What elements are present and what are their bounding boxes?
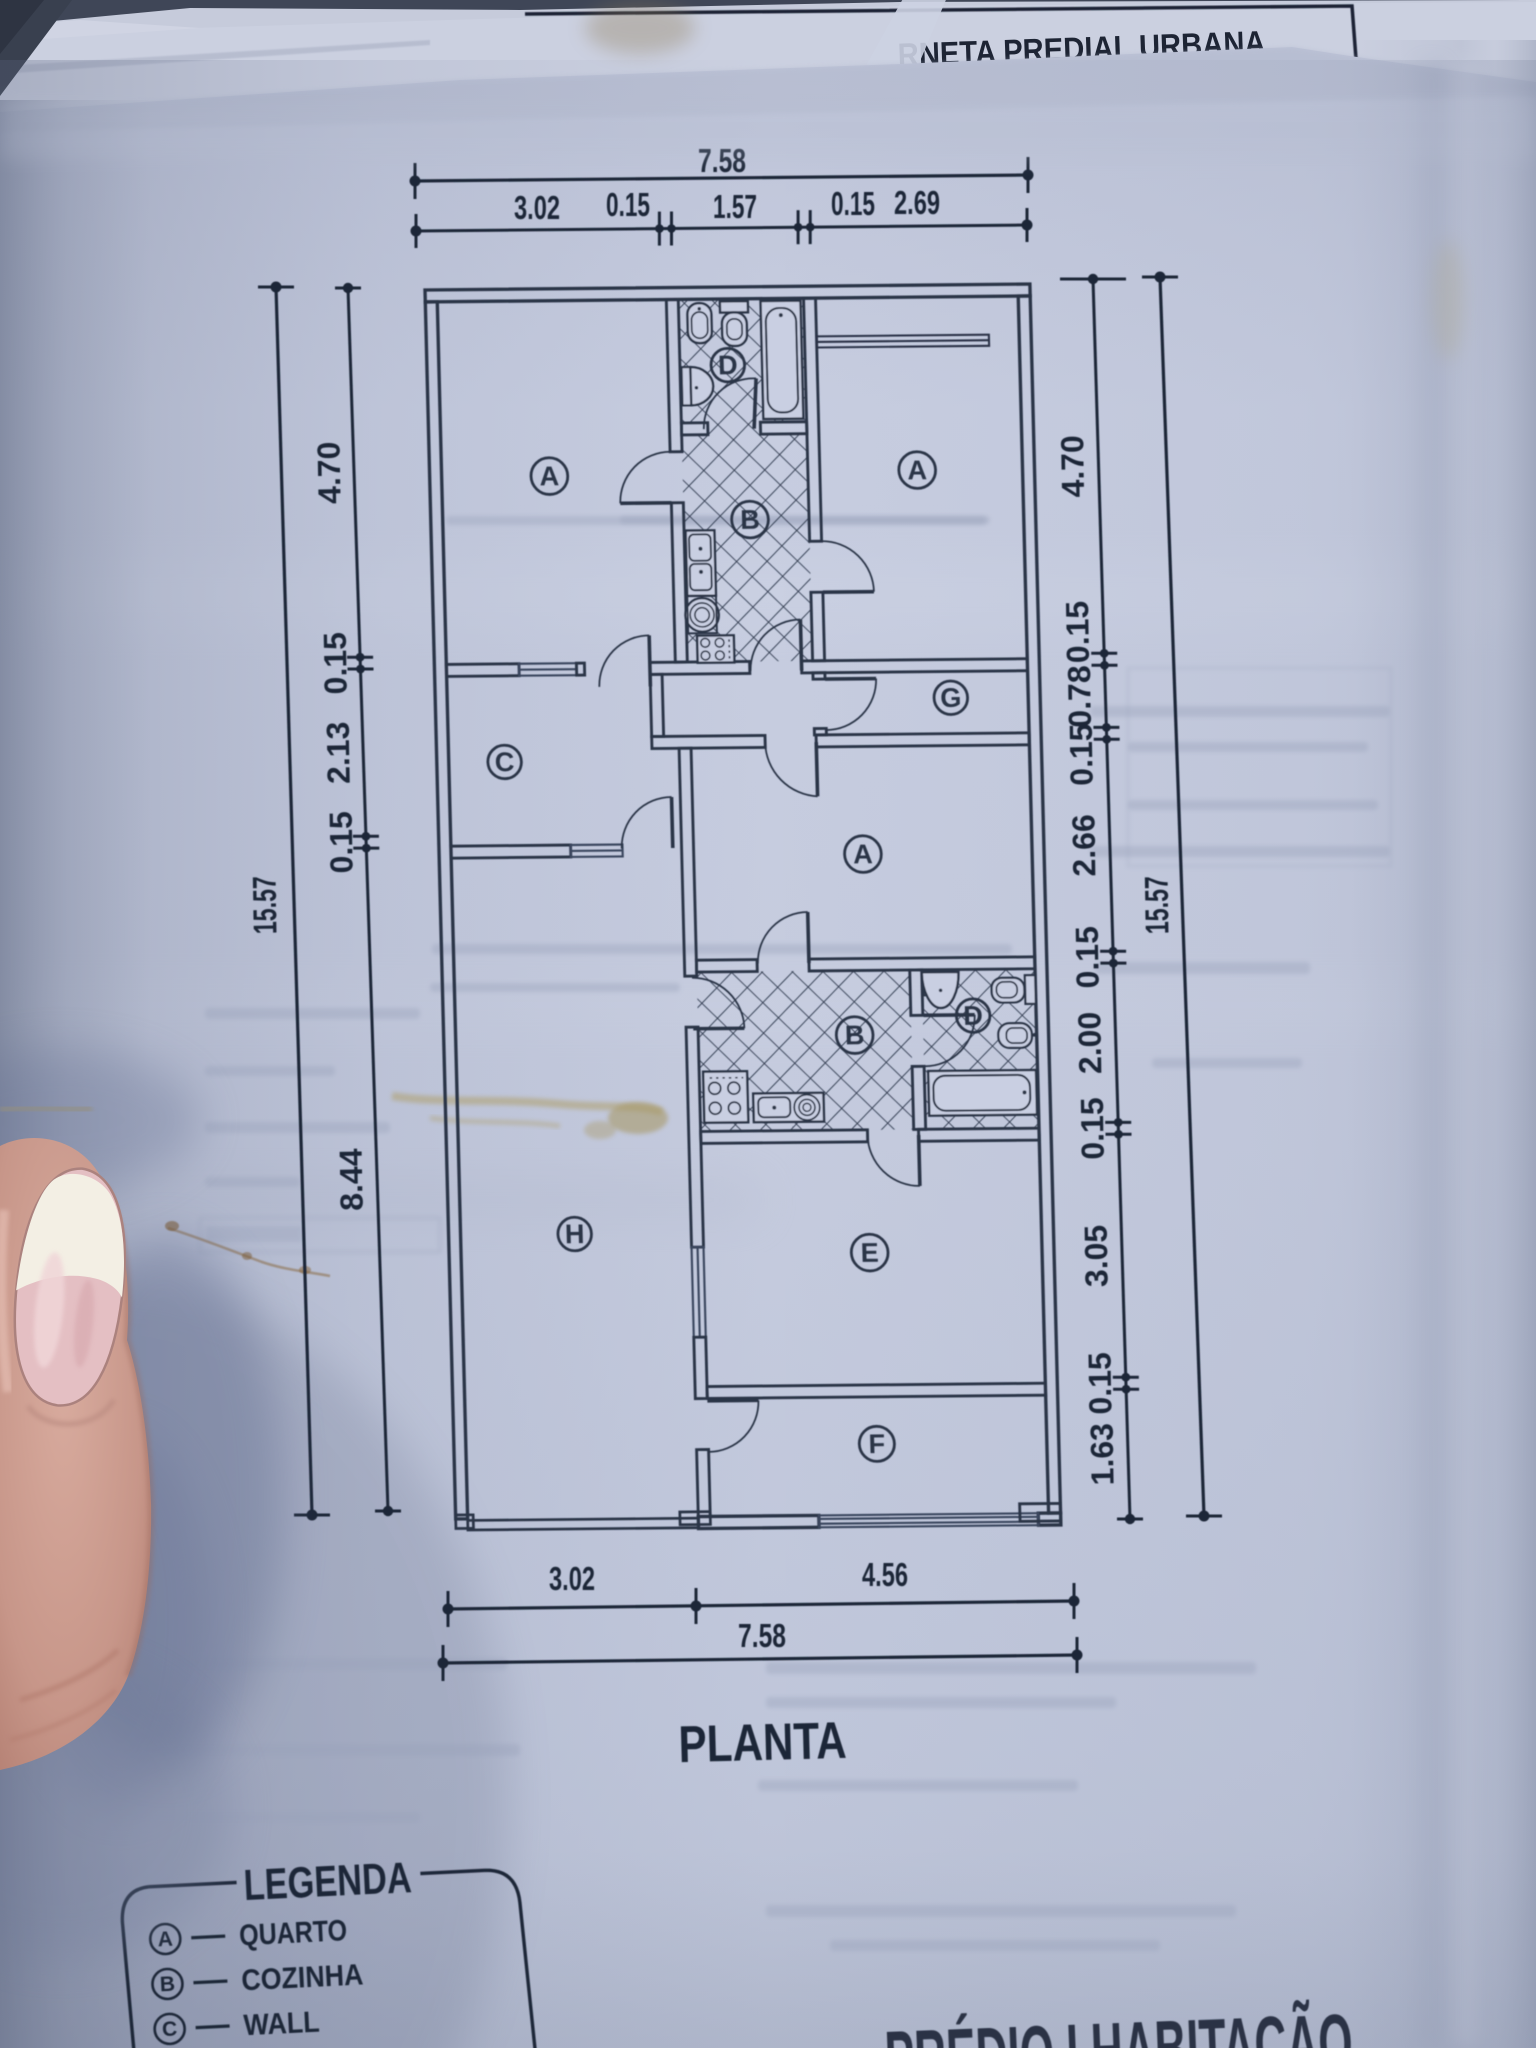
svg-text:F: F	[868, 1428, 885, 1459]
svg-text:PLANTA: PLANTA	[678, 1712, 847, 1774]
svg-text:8.44: 8.44	[333, 1148, 370, 1211]
svg-text:2.00: 2.00	[1071, 1011, 1108, 1074]
svg-text:0.78: 0.78	[1061, 665, 1098, 728]
svg-text:1.63: 1.63	[1084, 1423, 1121, 1486]
svg-text:3.05: 3.05	[1078, 1225, 1115, 1288]
svg-text:0.15: 0.15	[1059, 601, 1096, 664]
svg-text:2.69: 2.69	[894, 184, 940, 221]
svg-text:A: A	[853, 838, 873, 869]
svg-text:A: A	[907, 454, 927, 485]
svg-text:0.15: 0.15	[323, 811, 360, 874]
svg-text:H: H	[564, 1218, 584, 1249]
svg-text:D: D	[718, 349, 738, 380]
svg-text:4.70: 4.70	[310, 441, 347, 504]
svg-text:0.15: 0.15	[317, 632, 354, 695]
svg-text:C: C	[494, 746, 514, 777]
svg-text:B: B	[844, 1019, 864, 1050]
svg-text:0.15: 0.15	[1074, 1097, 1111, 1160]
svg-text:G: G	[940, 682, 962, 713]
svg-text:0.15: 0.15	[606, 186, 650, 223]
svg-text:0.15: 0.15	[831, 185, 875, 222]
svg-text:0.15: 0.15	[1081, 1352, 1118, 1415]
svg-text:1.57: 1.57	[713, 188, 757, 225]
svg-text:0.15: 0.15	[1069, 926, 1106, 989]
svg-text:C: C	[162, 2018, 178, 2042]
svg-text:COZINHA: COZINHA	[241, 1958, 364, 1997]
svg-text:B: B	[740, 504, 760, 535]
svg-text:B: B	[159, 1973, 175, 1997]
svg-text:QUARTO: QUARTO	[238, 1914, 347, 1952]
svg-text:WALL: WALL	[243, 2006, 321, 2043]
svg-text:D: D	[963, 1000, 983, 1031]
svg-text:E: E	[860, 1237, 879, 1268]
svg-text:3.02: 3.02	[549, 1560, 595, 1597]
svg-text:3.02: 3.02	[514, 189, 560, 226]
svg-text:LEGENDA: LEGENDA	[243, 1853, 413, 1910]
svg-text:7.58: 7.58	[738, 1617, 786, 1654]
svg-text:15.57: 15.57	[1137, 876, 1175, 935]
svg-text:A: A	[539, 460, 559, 491]
svg-text:2.66: 2.66	[1065, 814, 1102, 877]
svg-text:4.56: 4.56	[862, 1556, 908, 1593]
svg-text:2.13: 2.13	[320, 721, 357, 784]
svg-text:15.57: 15.57	[245, 876, 283, 935]
svg-text:0.15: 0.15	[1063, 723, 1100, 786]
svg-text:4.70: 4.70	[1054, 435, 1091, 498]
